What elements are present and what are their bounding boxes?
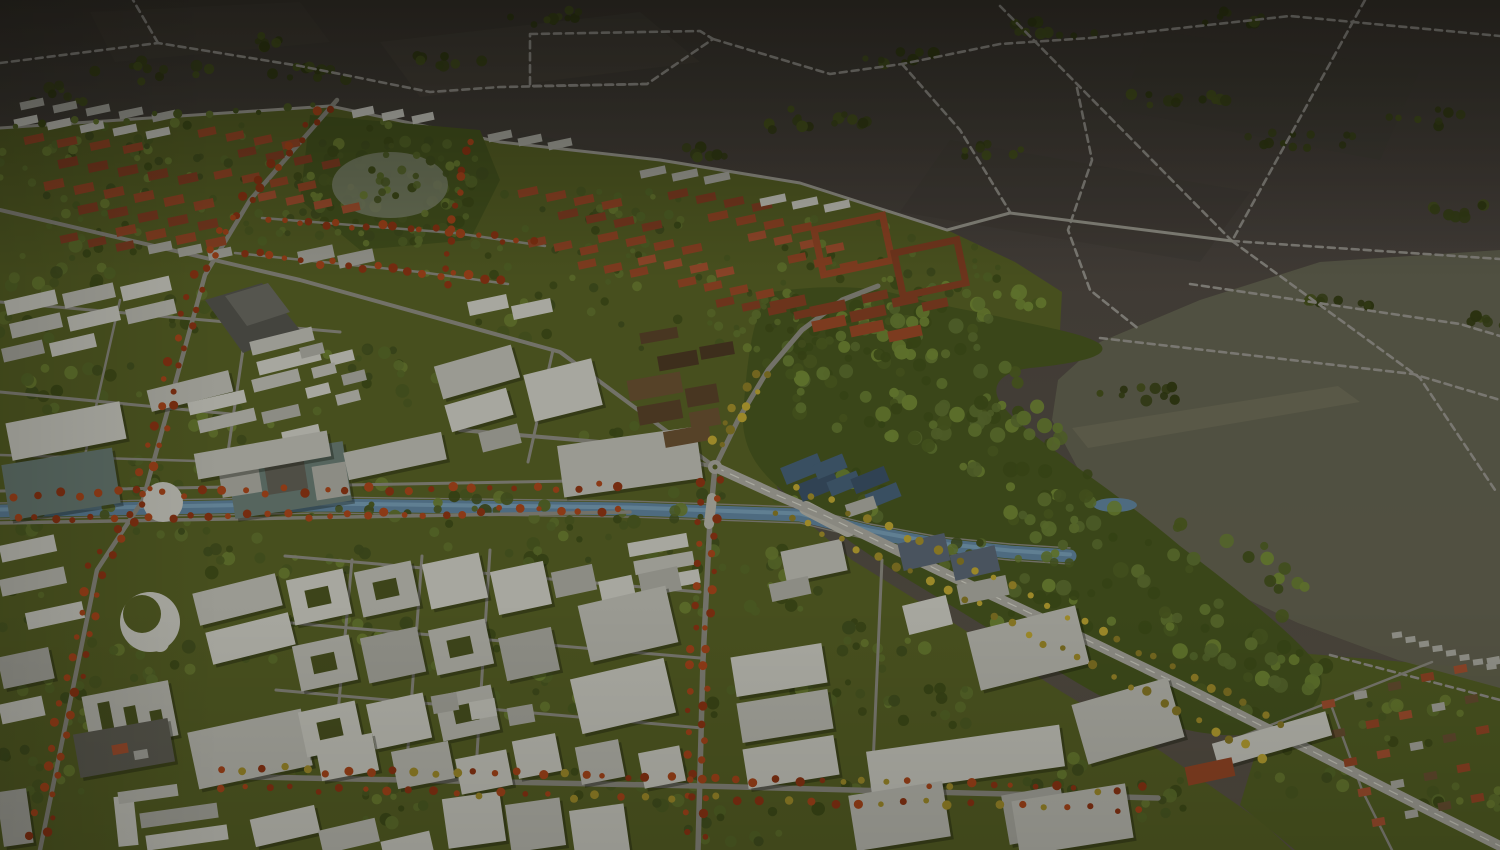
masterplan-aerial-render bbox=[0, 0, 1500, 850]
vignette-overlay bbox=[0, 0, 1500, 850]
aerial-render-viewport bbox=[0, 0, 1500, 850]
